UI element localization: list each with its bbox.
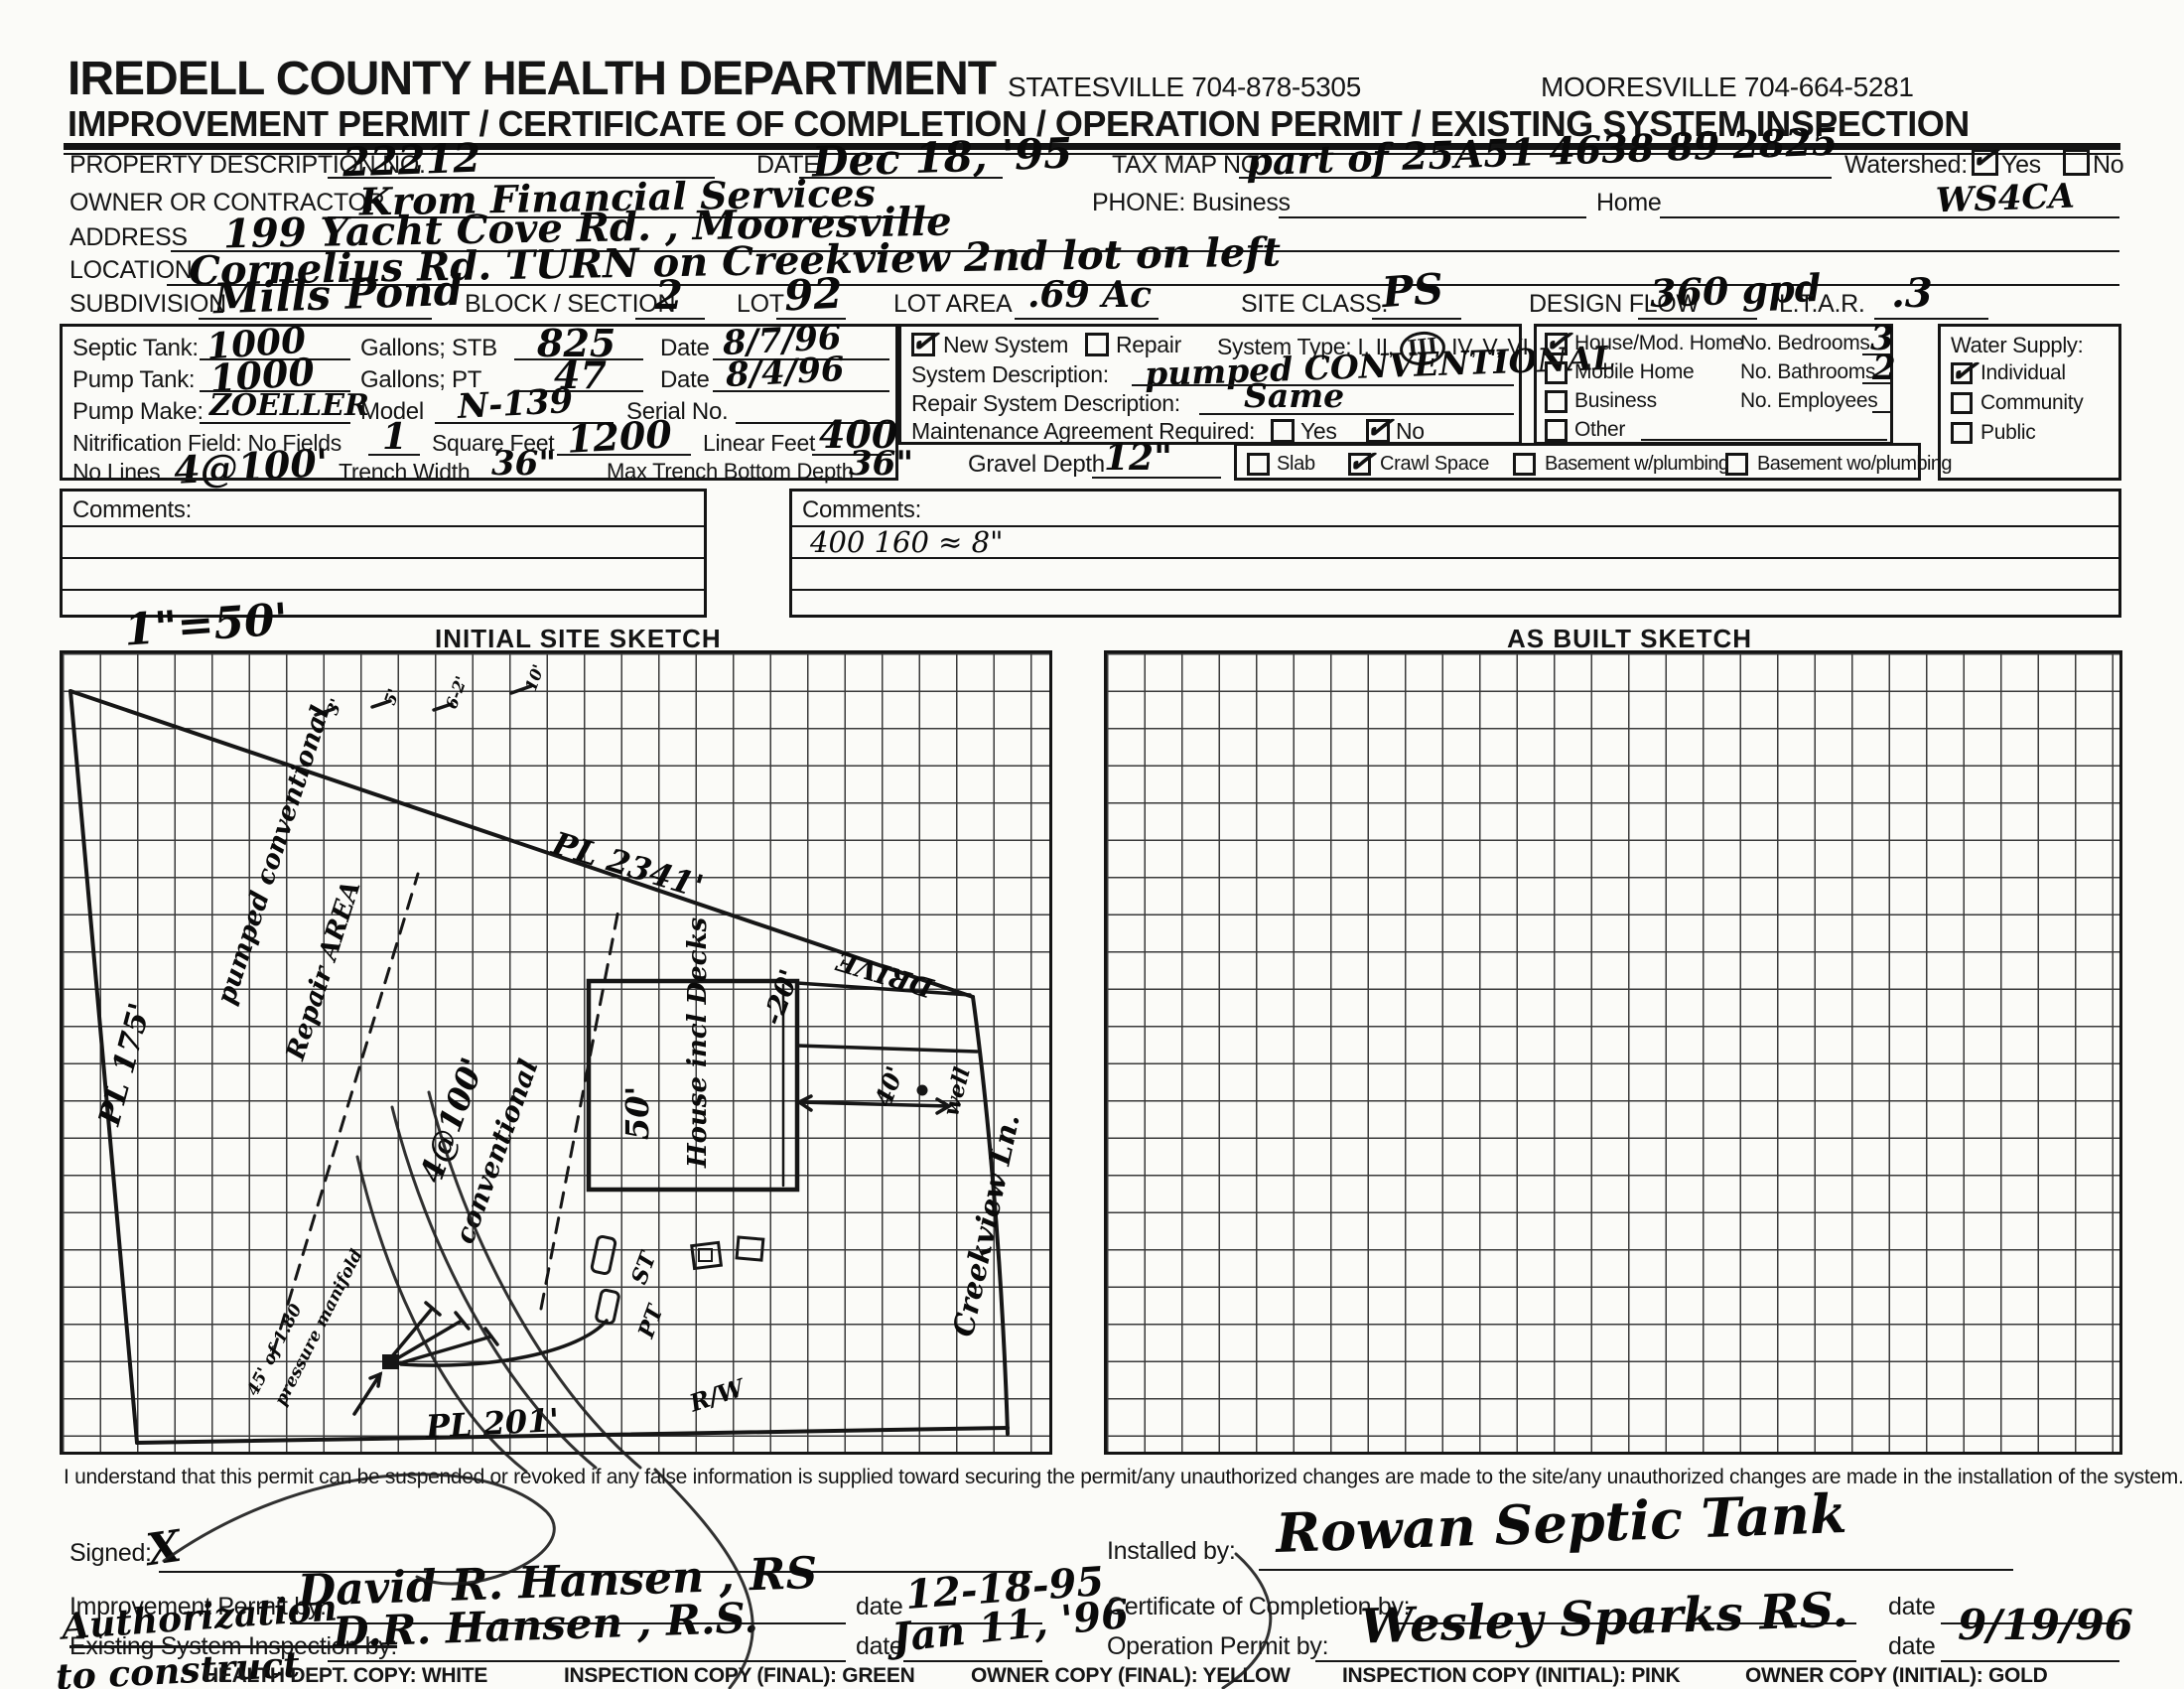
block-section-label: BLOCK / SECTION [465, 290, 675, 319]
repair-description-line [1199, 413, 1514, 415]
block-section-value: 2 [655, 272, 683, 319]
watershed-yes-label: Yes [2001, 151, 2041, 180]
watershed-code-value: WS4CA [1935, 177, 2075, 221]
slab-label: Slab [1277, 453, 1315, 476]
maintenance-no-label: No [1396, 418, 1425, 445]
bedrooms-label: No. Bedrooms [1740, 332, 1870, 355]
phone-business-line [1279, 216, 1586, 218]
subdivision-line [199, 318, 432, 320]
comments-left-box: Comments: [60, 489, 707, 618]
lot-value: 92 [783, 269, 844, 321]
subdivision-value: Mills Pond [212, 266, 464, 324]
system-description-label: System Description: [911, 361, 1109, 388]
operation-permit-signature: Wesley Sparks RS. [1359, 1582, 1849, 1654]
existing-system-line [328, 1660, 846, 1662]
watershed-yes-checkbox [1972, 149, 1998, 176]
copy-owner-initial: OWNER COPY (INITIAL): GOLD [1745, 1664, 2047, 1688]
system-info-box: New System Repair System Type: I, II, II… [898, 324, 1522, 445]
bathrooms-label: No. Bathrooms [1740, 360, 1875, 384]
employees-line [1872, 411, 1892, 413]
other-label: Other [1574, 418, 1625, 442]
comments-left-rule-1 [63, 525, 704, 527]
community-label: Community [1980, 391, 2084, 415]
comments-left-rule-2 [63, 557, 704, 559]
crawl-space-checkbox [1348, 453, 1371, 476]
page-title: IREDELL COUNTY HEALTH DEPARTMENT [68, 52, 996, 106]
basement-wo-label: Basement wo/plumbing [1757, 453, 1952, 476]
sketch-scale-note: 1"=50' [122, 594, 289, 655]
gravel-depth-label: Gravel Depth [968, 451, 1105, 479]
sketch-label-house: House incl Decks [683, 917, 713, 1168]
permit-statement: I understand that this permit can be sus… [64, 1466, 2168, 1489]
lot-area-label: LOT AREA [893, 290, 1012, 319]
initial-site-sketch: PL 2341' PL 175' PL 201' pumped conventi… [60, 650, 1052, 1455]
pt-date-line [713, 390, 889, 392]
new-system-checkbox [911, 333, 935, 356]
no-fields-line [368, 454, 420, 456]
lot-area-value: .69 Ac [1027, 274, 1152, 316]
taxmap-line [1239, 177, 1832, 179]
basement-w-checkbox [1513, 453, 1536, 476]
crawl-space-label: Crawl Space [1380, 453, 1489, 476]
comments-right-note: 400 160 ≈ 8" [810, 525, 1003, 559]
slab-checkbox [1247, 453, 1270, 476]
maintenance-yes-checkbox [1271, 419, 1295, 443]
home-line [1660, 216, 2119, 218]
individual-checkbox [1951, 362, 1973, 384]
site-plan-drawing [63, 653, 1055, 1458]
pt-date-value: 8/4/96 [725, 350, 845, 395]
copy-inspection-final: INSPECTION COPY (FINAL): GREEN [564, 1664, 914, 1688]
certificate-date-label: date [1888, 1593, 1935, 1621]
septic-tank-label: Septic Tank: [72, 335, 199, 362]
scanned-permit-form: IREDELL COUNTY HEALTH DEPARTMENT STATESV… [0, 0, 2184, 1689]
public-checkbox [1951, 422, 1973, 444]
stb-date-label: Date [660, 335, 710, 362]
pump-tank-label: Pump Tank: [72, 366, 195, 394]
pt-date-label: Date [660, 366, 710, 394]
basement-wo-checkbox [1725, 453, 1748, 476]
new-system-label: New System [943, 332, 1068, 358]
ltar-label: L.T.A.R. [1779, 290, 1865, 319]
lot-label: LOT [737, 290, 784, 319]
watershed-no-label: No [2093, 151, 2123, 180]
mobile-home-checkbox [1545, 361, 1568, 384]
sketch-label-house-width: 50' [618, 1086, 656, 1140]
mobile-home-label: Mobile Home [1574, 360, 1694, 384]
repair-checkbox [1085, 333, 1109, 356]
maintenance-yes-label: Yes [1300, 418, 1337, 445]
mooresville-phone: MOORESVILLE 704-664-5281 [1541, 71, 1914, 103]
house-label: House/Mod. Home [1574, 332, 1744, 355]
other-line [1641, 439, 1887, 441]
comments-right-rule-3 [792, 589, 2118, 591]
foundation-box: Slab Crawl Space Basement w/plumbing Bas… [1234, 443, 1921, 481]
operation-date-line [1941, 1660, 2119, 1662]
gravel-depth-value: 12" [1104, 437, 1172, 479]
block-section-line [635, 318, 705, 320]
watershed-no-checkbox [2063, 149, 2090, 176]
existing-date-line [903, 1660, 1042, 1662]
as-built-sketch [1104, 650, 2122, 1455]
make-line [200, 422, 350, 424]
linear-feet-label: Linear Feet [703, 430, 815, 457]
other-checkbox [1545, 419, 1568, 442]
public-label: Public [1980, 421, 2035, 445]
site-class-label: SITE CLASS. [1241, 290, 1388, 319]
bathrooms-line [1862, 382, 1892, 384]
operation-date-label: date [1888, 1632, 1935, 1661]
signed-label: Signed: [69, 1539, 152, 1568]
community-checkbox [1951, 392, 1973, 414]
operation-permit-line [1315, 1660, 1856, 1662]
signed-x-mark: X [144, 1521, 185, 1576]
installed-by-signature: Rowan Septic Tank [1275, 1481, 1847, 1565]
tank-info-box: Septic Tank: 1000 Gallons; STB 825 Date … [60, 324, 898, 481]
individual-label: Individual [1980, 361, 2066, 385]
no-fields-value: 1 [382, 416, 407, 458]
sketch-label-pl-bottom: PL 201' [425, 1401, 560, 1446]
no-lines-label: No Lines [72, 459, 160, 486]
copy-owner-final: OWNER COPY (FINAL): YELLOW [971, 1664, 1291, 1688]
design-flow-line [1638, 318, 1757, 320]
structure-box: House/Mod. Home No. Bedrooms 3 Mobile Ho… [1534, 324, 1893, 445]
maintenance-no-checkbox [1366, 419, 1390, 443]
repair-description-value: Same [1244, 376, 1344, 415]
subdivision-label: SUBDIVISION [69, 290, 226, 319]
watershed-label: Watershed: [1844, 151, 1968, 180]
copy-health-dept: HEALTH DEPT. COPY: WHITE [204, 1664, 487, 1688]
trench-width-line [479, 478, 594, 480]
home-label: Home [1596, 189, 1662, 217]
max-trench-depth-label: Max Trench Bottom Depth [607, 459, 854, 485]
comments-right-label: Comments: [802, 496, 921, 524]
taxmap-label: TAX MAP NO. [1112, 151, 1267, 180]
statesville-phone: STATESVILLE 704-878-5305 [1008, 71, 1361, 103]
no-lines-line [167, 478, 326, 480]
gravel-depth-line [1092, 477, 1221, 479]
water-supply-box: Water Supply: Individual Community Publi… [1938, 324, 2121, 481]
copy-inspection-initial: INSPECTION COPY (INITIAL): PINK [1342, 1664, 1680, 1688]
comments-right-box: Comments: 400 160 ≈ 8" [789, 489, 2121, 618]
trench-width-label: Trench Width [339, 459, 470, 486]
phone-business-label: PHONE: Business [1092, 189, 1291, 217]
installed-by-label: Installed by: [1107, 1537, 1236, 1566]
operation-permit-label: Operation Permit by: [1107, 1632, 1328, 1661]
basement-w-label: Basement w/plumbing [1545, 453, 1728, 476]
business-label: Business [1574, 389, 1657, 413]
pump-make-label: Pump Make: [72, 398, 204, 426]
site-class-line [1372, 318, 1461, 320]
gallons-stb-label: Gallons; STB [360, 335, 497, 362]
address-label: ADDRESS [69, 223, 188, 252]
no-lines-value: 4@100' [173, 440, 330, 493]
operation-date-value: 9/19/96 [1958, 1601, 2133, 1649]
installed-by-line [1259, 1569, 2013, 1571]
ltar-value: .3 [1891, 270, 1933, 317]
location-label: LOCATION [69, 256, 193, 285]
max-trench-depth-value: 36" [849, 444, 913, 484]
square-feet-line [557, 454, 691, 456]
pump-make-value: ZOELLER [209, 388, 369, 423]
business-checkbox [1545, 390, 1568, 413]
lot-area-line [1015, 318, 1159, 320]
house-checkbox [1545, 333, 1568, 355]
repair-description-label: Repair System Description: [911, 390, 1180, 417]
site-class-value: PS [1380, 264, 1444, 317]
comments-left-label: Comments: [72, 496, 192, 524]
maintenance-label: Maintenance Agreement Required: [911, 418, 1255, 445]
model-value: N-139 [457, 381, 574, 427]
comments-left-rule-3 [63, 589, 704, 591]
employees-label: No. Employees [1740, 389, 1878, 413]
